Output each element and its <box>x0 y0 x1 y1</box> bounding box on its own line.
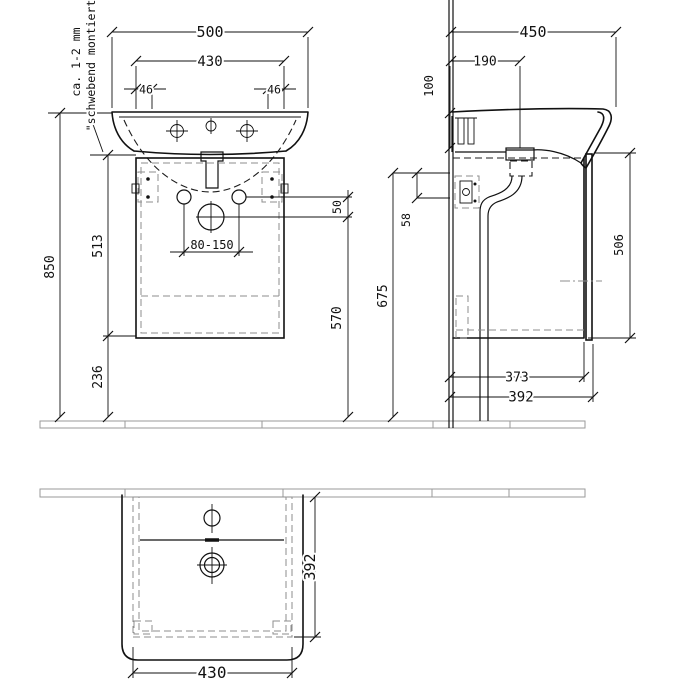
dim-side-door-height: 506 <box>612 234 626 256</box>
dim-front-width-total: 500 <box>196 23 223 41</box>
dim-front-width-cabinet: 430 <box>197 54 222 70</box>
side-dimensions: 450 190 100 506 373 392 <box>422 23 636 406</box>
basin-front-outline <box>112 112 308 155</box>
wall-line <box>449 0 453 428</box>
dim-front-height-cabinet: 513 <box>91 234 106 257</box>
note-line1: ca. 1-2 mm <box>69 27 83 96</box>
plan-view <box>122 495 303 660</box>
dim-tap-connection-range: 80-150 <box>190 238 233 252</box>
dim-plan-depth: 392 <box>301 553 319 580</box>
dim-side-basin-height: 100 <box>422 75 436 97</box>
cabinet-door-side <box>586 154 592 340</box>
mounting-note: ca. 1-2 mm "schwebend montiert" <box>69 0 98 131</box>
front-view <box>112 112 308 338</box>
dim-supply-drain-gap: 50 <box>330 200 344 214</box>
drain-hole-plan <box>197 547 227 584</box>
dim-front-offset-right: 46 <box>267 83 281 97</box>
note-line2: "schwebend montiert" <box>84 0 98 131</box>
dim-side-cabinet-depth: 373 <box>505 371 528 386</box>
cabinet-side <box>453 154 602 340</box>
supply-hole-right <box>232 190 246 204</box>
dim-bracket-span: 58 <box>399 213 413 227</box>
dim-front-height-floor: 236 <box>91 365 106 388</box>
faucet-hole-plan <box>204 504 220 533</box>
dim-drain-height: 570 <box>330 306 345 329</box>
mounting-hole-left <box>166 120 188 142</box>
dim-front-height-total: 850 <box>43 255 58 278</box>
mounting-hole-right <box>236 120 258 142</box>
dim-side-depth-with-door: 392 <box>508 390 533 406</box>
dim-front-offset-left: 46 <box>139 83 153 97</box>
overflow-hole <box>206 118 216 134</box>
dim-side-drain-depth: 190 <box>473 55 496 70</box>
floor-band-upper <box>40 421 585 428</box>
dim-bracket-height: 675 <box>376 284 391 307</box>
front-dimensions: 500 430 46 46 850 513 236 80-150 50 570 … <box>43 23 450 422</box>
supply-hole-left <box>177 190 191 204</box>
technical-drawing-vanity-unit: 500 430 46 46 850 513 236 80-150 50 570 … <box>0 0 700 700</box>
dim-plan-width: 430 <box>198 663 227 682</box>
dim-side-depth-total: 450 <box>519 23 546 41</box>
cabinet-plan-hidden <box>133 497 292 637</box>
mounting-bracket-side <box>455 176 479 208</box>
drain-hole <box>196 201 226 233</box>
